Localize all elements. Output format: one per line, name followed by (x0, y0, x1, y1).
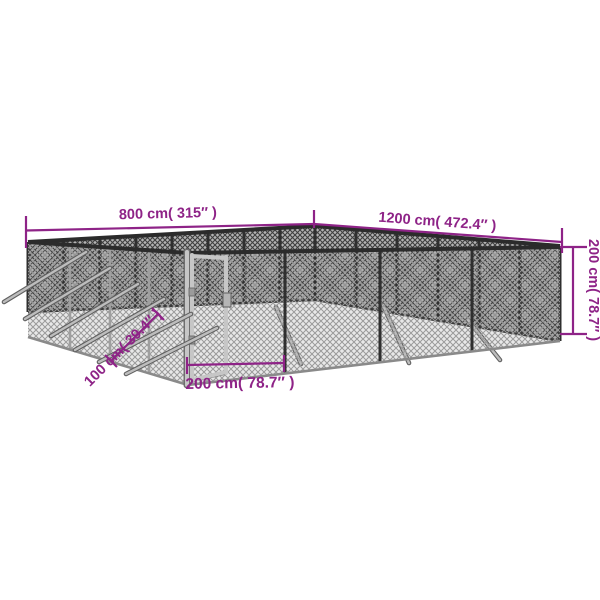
dimension-label-back-left-width: 800 cm( 315″ ) (119, 205, 218, 223)
dimension-height: 200 cm( 78.7″ ) (560, 239, 600, 341)
product-diagram-page: 800 cm( 315″ ) 1200 cm( 472.4″ ) 200 cm(… (0, 0, 600, 600)
gate-latch (223, 293, 231, 307)
dimension-label-height: 200 cm( 78.7″ ) (585, 239, 600, 341)
kennel-dimension-diagram: 800 cm( 315″ ) 1200 cm( 472.4″ ) 200 cm(… (0, 0, 600, 600)
gate-hinge-icon (189, 288, 195, 296)
dimension-label-gate-panel-width: 200 cm( 78.7″ ) (185, 374, 294, 393)
